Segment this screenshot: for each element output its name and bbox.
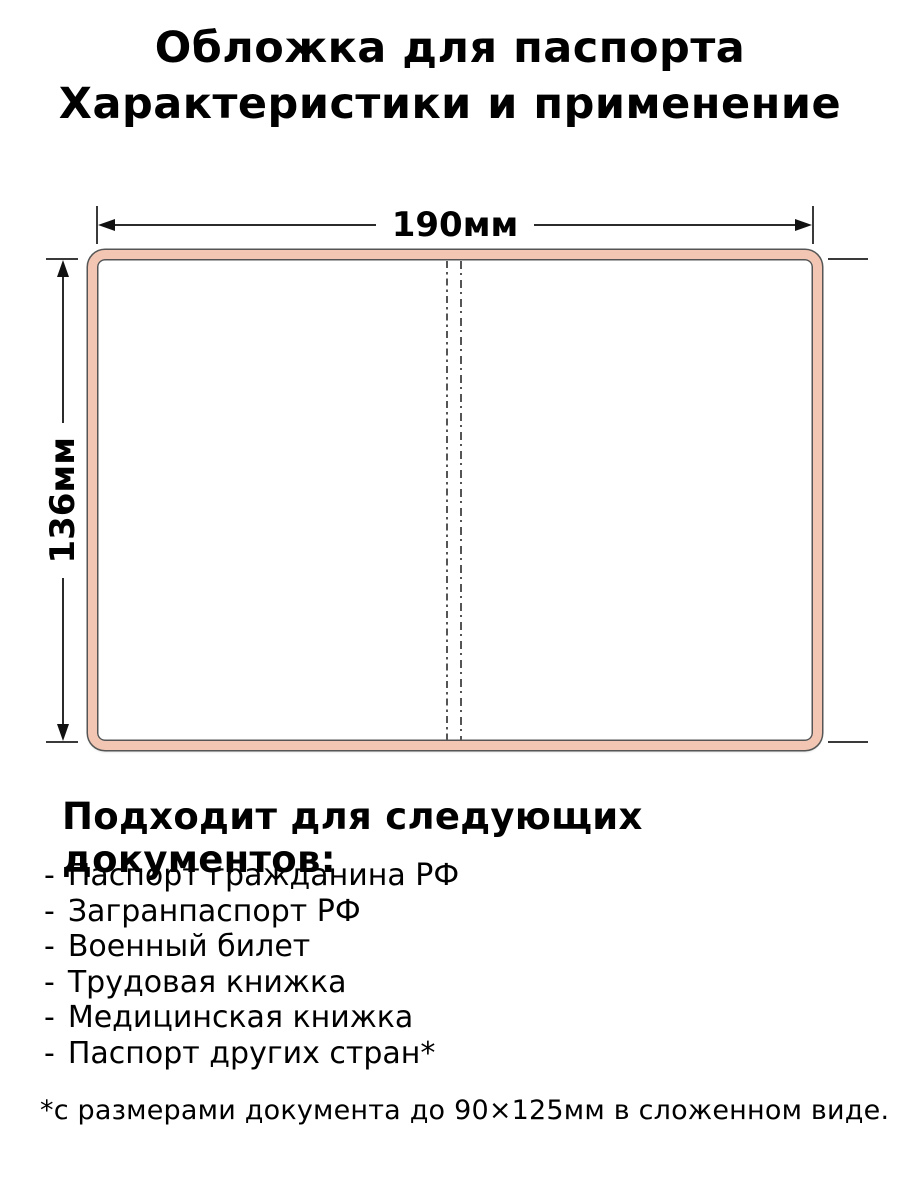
title-line-2: Характеристики и применение: [0, 76, 900, 132]
list-bullet: -: [44, 858, 55, 894]
fold-line-left: [446, 261, 448, 740]
list-item: -Загранпаспорт РФ: [44, 894, 459, 930]
document-list: -Паспорт гражданина РФ -Загранпаспорт РФ…: [44, 858, 459, 1071]
dimension-line: [534, 224, 795, 226]
list-item: -Военный билет: [44, 929, 459, 965]
width-dimension: 190мм: [98, 208, 812, 242]
dimension-extension-tick-left-bottom: [46, 741, 78, 743]
page-title: Обложка для паспорта Характеристики и пр…: [0, 20, 900, 132]
list-item-label: Загранпаспорт РФ: [68, 894, 361, 929]
list-bullet: -: [44, 894, 55, 930]
list-item-label: Паспорт гражданина РФ: [68, 858, 459, 893]
list-item: -Медицинская книжка: [44, 1000, 459, 1036]
passport-cover-outline: [88, 250, 822, 750]
list-item: -Паспорт гражданина РФ: [44, 858, 459, 894]
width-dimension-label: 190мм: [376, 205, 535, 245]
dimension-line: [62, 578, 64, 724]
dimension-line: [115, 224, 376, 226]
dimension-extension-tick-top-right: [812, 206, 814, 244]
list-bullet: -: [44, 1036, 55, 1072]
arrowhead-right-icon: [795, 219, 812, 231]
height-dimension-label: 136мм: [43, 423, 83, 578]
dimension-extension-tick-right-bottom: [828, 741, 868, 743]
list-bullet: -: [44, 965, 55, 1001]
list-bullet: -: [44, 929, 55, 965]
dimension-line: [62, 277, 64, 423]
arrowhead-left-icon: [98, 219, 115, 231]
list-item-label: Трудовая книжка: [68, 965, 347, 1000]
product-infographic: Обложка для паспорта Характеристики и пр…: [0, 0, 900, 1200]
fold-line-right: [460, 261, 462, 740]
footnote: *с размерами документа до 90×125мм в сло…: [40, 1095, 889, 1126]
list-item-label: Медицинская книжка: [68, 1000, 413, 1035]
arrowhead-down-icon: [57, 724, 69, 741]
list-item-label: Военный билет: [68, 929, 310, 964]
list-item-label: Паспорт других стран*: [68, 1036, 436, 1071]
height-dimension: 136мм: [47, 260, 79, 741]
title-line-1: Обложка для паспорта: [0, 20, 900, 76]
dimension-extension-tick-right-top: [828, 258, 868, 260]
list-bullet: -: [44, 1000, 55, 1036]
list-item: -Паспорт других стран*: [44, 1036, 459, 1072]
arrowhead-up-icon: [57, 260, 69, 277]
list-item: -Трудовая книжка: [44, 965, 459, 1001]
